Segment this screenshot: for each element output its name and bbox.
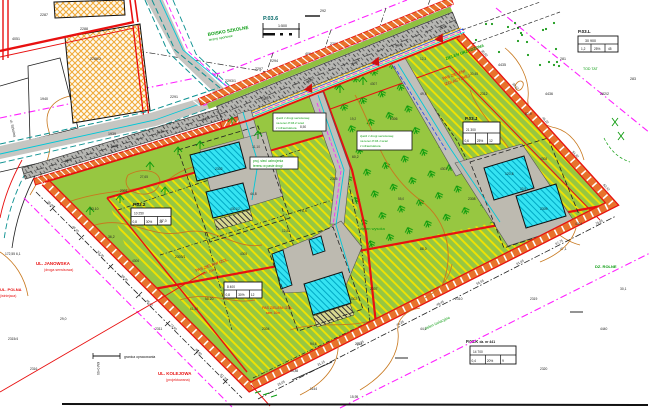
svg-text:60,2: 60,2 bbox=[352, 155, 359, 159]
svg-text:4308: 4308 bbox=[540, 157, 547, 161]
svg-text:75,4: 75,4 bbox=[300, 209, 307, 213]
svg-text:P.03.J: P.03.J bbox=[465, 116, 478, 121]
svg-text:P.03.L: P.03.L bbox=[578, 29, 591, 34]
svg-text:(droga serwisowa): (droga serwisowa) bbox=[44, 268, 73, 272]
svg-text:1939: 1939 bbox=[108, 132, 116, 136]
svg-text:P.03.6: P.03.6 bbox=[263, 16, 278, 22]
svg-text:granica opracowania: granica opracowania bbox=[124, 355, 155, 359]
svg-text:(istniejaca): (istniejaca) bbox=[0, 294, 16, 298]
svg-text:25%: 25% bbox=[477, 139, 484, 143]
svg-text:20%: 20% bbox=[487, 359, 494, 363]
svg-text:z infrastruktura: z infrastruktura bbox=[276, 126, 297, 130]
svg-text:27,65: 27,65 bbox=[140, 175, 148, 179]
svg-text:2293/1: 2293/1 bbox=[225, 79, 236, 83]
svg-text:terenu w pasie drogi: terenu w pasie drogi bbox=[253, 164, 283, 168]
svg-text:94,6: 94,6 bbox=[310, 342, 317, 346]
svg-text:15,95: 15,95 bbox=[350, 395, 358, 399]
svg-text:30%: 30% bbox=[238, 293, 245, 297]
svg-text:zjazd z drogi serwisowej: zjazd z drogi serwisowej bbox=[276, 116, 310, 120]
svg-text:4435: 4435 bbox=[498, 63, 506, 67]
svg-text:4436: 4436 bbox=[545, 92, 553, 96]
svg-text:PAS ZIELENI IZOL.: PAS ZIELENI IZOL. bbox=[262, 306, 294, 310]
svg-text:61,40: 61,40 bbox=[190, 307, 198, 311]
svg-text:58,20: 58,20 bbox=[205, 297, 214, 301]
svg-text:UL. KOLEJOWA: UL. KOLEJOWA bbox=[158, 371, 192, 376]
svg-text:na teren P.03.J wraz: na teren P.03.J wraz bbox=[360, 139, 388, 143]
svg-text:25%: 25% bbox=[594, 47, 601, 51]
svg-text:120,8: 120,8 bbox=[505, 172, 514, 176]
svg-text:P.03.2: P.03.2 bbox=[133, 202, 146, 207]
svg-text:44,2: 44,2 bbox=[420, 327, 427, 331]
svg-text:TOD TAT: TOD TAT bbox=[583, 67, 599, 71]
svg-text:281: 281 bbox=[560, 57, 566, 61]
svg-text:UL. JANOWSKA: UL. JANOWSKA bbox=[36, 261, 71, 266]
svg-text:0,8: 0,8 bbox=[226, 293, 231, 297]
svg-text:0,4: 0,4 bbox=[472, 359, 477, 363]
svg-text:8,50: 8,50 bbox=[300, 125, 306, 129]
svg-text:283: 283 bbox=[630, 77, 636, 81]
svg-text:2304: 2304 bbox=[262, 327, 270, 331]
svg-text:52,9: 52,9 bbox=[525, 112, 532, 116]
svg-text:12,85: 12,85 bbox=[282, 229, 290, 233]
svg-text:0,8: 0,8 bbox=[133, 220, 138, 224]
svg-text:4301/2: 4301/2 bbox=[230, 207, 240, 211]
svg-text:zjazd z drogi serwisowej: zjazd z drogi serwisowej bbox=[360, 134, 394, 138]
svg-text:12,3: 12,3 bbox=[420, 57, 426, 61]
svg-text:DZ. ROLNE: DZ. ROLNE bbox=[595, 264, 617, 269]
svg-text:z infrastruktura: z infrastruktura bbox=[360, 144, 381, 148]
svg-text:2297: 2297 bbox=[255, 67, 263, 71]
svg-text:23,9: 23,9 bbox=[520, 187, 526, 191]
svg-text:2287: 2287 bbox=[40, 13, 48, 17]
svg-text:2318: 2318 bbox=[355, 342, 363, 346]
svg-text:2303/1: 2303/1 bbox=[175, 255, 185, 259]
svg-text:12: 12 bbox=[251, 293, 255, 297]
svg-text:55,0: 55,0 bbox=[398, 197, 404, 201]
svg-text:4303: 4303 bbox=[440, 167, 447, 171]
svg-text:4306: 4306 bbox=[132, 259, 139, 263]
svg-text:KM 0+00: KM 0+00 bbox=[96, 362, 100, 375]
svg-text:2312: 2312 bbox=[480, 92, 488, 96]
svg-text:282/2: 282/2 bbox=[600, 92, 609, 96]
svg-text:29,0: 29,0 bbox=[60, 317, 67, 321]
svg-text:2316: 2316 bbox=[30, 367, 38, 371]
svg-text:4304: 4304 bbox=[575, 222, 582, 226]
svg-text:8 400: 8 400 bbox=[227, 285, 235, 289]
svg-text:szer. 10m: szer. 10m bbox=[266, 311, 280, 315]
svg-text:1,2: 1,2 bbox=[581, 47, 586, 51]
svg-text:30,45: 30,45 bbox=[470, 72, 478, 76]
svg-text:2294: 2294 bbox=[270, 59, 278, 63]
svg-text:12: 12 bbox=[489, 139, 493, 143]
svg-text:88,0: 88,0 bbox=[420, 247, 427, 251]
svg-text:2305: 2305 bbox=[330, 177, 338, 181]
svg-text:30,1: 30,1 bbox=[620, 287, 627, 291]
svg-text:4440: 4440 bbox=[600, 327, 608, 331]
svg-text:2319: 2319 bbox=[530, 297, 538, 301]
svg-text:172,55 6,1: 172,55 6,1 bbox=[5, 252, 21, 256]
svg-text:19,2: 19,2 bbox=[350, 117, 356, 121]
svg-text:1144: 1144 bbox=[310, 387, 317, 391]
svg-text:21 300: 21 300 bbox=[466, 128, 476, 132]
svg-text:UL. POLNA: UL. POLNA bbox=[0, 287, 22, 292]
svg-text:2291: 2291 bbox=[170, 95, 178, 99]
svg-text:2301: 2301 bbox=[120, 189, 128, 193]
svg-text:2309: 2309 bbox=[540, 207, 548, 211]
svg-text:1940: 1940 bbox=[40, 97, 48, 101]
svg-text:43,10: 43,10 bbox=[90, 207, 99, 211]
svg-text:30 900: 30 900 bbox=[585, 39, 596, 43]
svg-text:31,10: 31,10 bbox=[252, 145, 260, 149]
svg-text:2311: 2311 bbox=[155, 327, 162, 331]
svg-text:57,0: 57,0 bbox=[160, 219, 167, 223]
svg-text:14 700: 14 700 bbox=[473, 350, 483, 354]
svg-text:49,5: 49,5 bbox=[420, 92, 427, 96]
svg-text:45: 45 bbox=[608, 47, 612, 51]
svg-text:4051: 4051 bbox=[12, 37, 20, 41]
svg-text:4305: 4305 bbox=[240, 252, 247, 256]
svg-text:44,8: 44,8 bbox=[250, 192, 257, 196]
svg-text:2307: 2307 bbox=[370, 287, 378, 291]
svg-text:2302: 2302 bbox=[215, 167, 223, 171]
svg-text:2306: 2306 bbox=[390, 117, 398, 121]
svg-text:2320: 2320 bbox=[540, 367, 548, 371]
svg-text:(projektowana): (projektowana) bbox=[166, 378, 190, 382]
svg-text:10 250: 10 250 bbox=[134, 212, 144, 216]
svg-text:2286/2: 2286/2 bbox=[90, 57, 101, 61]
svg-text:zielen wysoka: zielen wysoka bbox=[360, 226, 386, 231]
svg-text:2288: 2288 bbox=[80, 27, 88, 31]
svg-text:9: 9 bbox=[502, 359, 504, 363]
svg-text:2315/4: 2315/4 bbox=[8, 337, 18, 341]
svg-text:proj. sieci uzbrojenia: proj. sieci uzbrojenia bbox=[253, 159, 283, 163]
svg-text:2308: 2308 bbox=[468, 197, 476, 201]
svg-text:4307: 4307 bbox=[370, 82, 377, 86]
svg-text:292: 292 bbox=[320, 9, 326, 13]
svg-text:0,6: 0,6 bbox=[465, 139, 470, 143]
svg-text:1:500: 1:500 bbox=[278, 24, 287, 28]
svg-text:30%: 30% bbox=[146, 220, 153, 224]
svg-text:43,85: 43,85 bbox=[290, 369, 298, 373]
svg-text:36,2: 36,2 bbox=[108, 235, 115, 239]
svg-text:4302: 4302 bbox=[350, 297, 357, 301]
